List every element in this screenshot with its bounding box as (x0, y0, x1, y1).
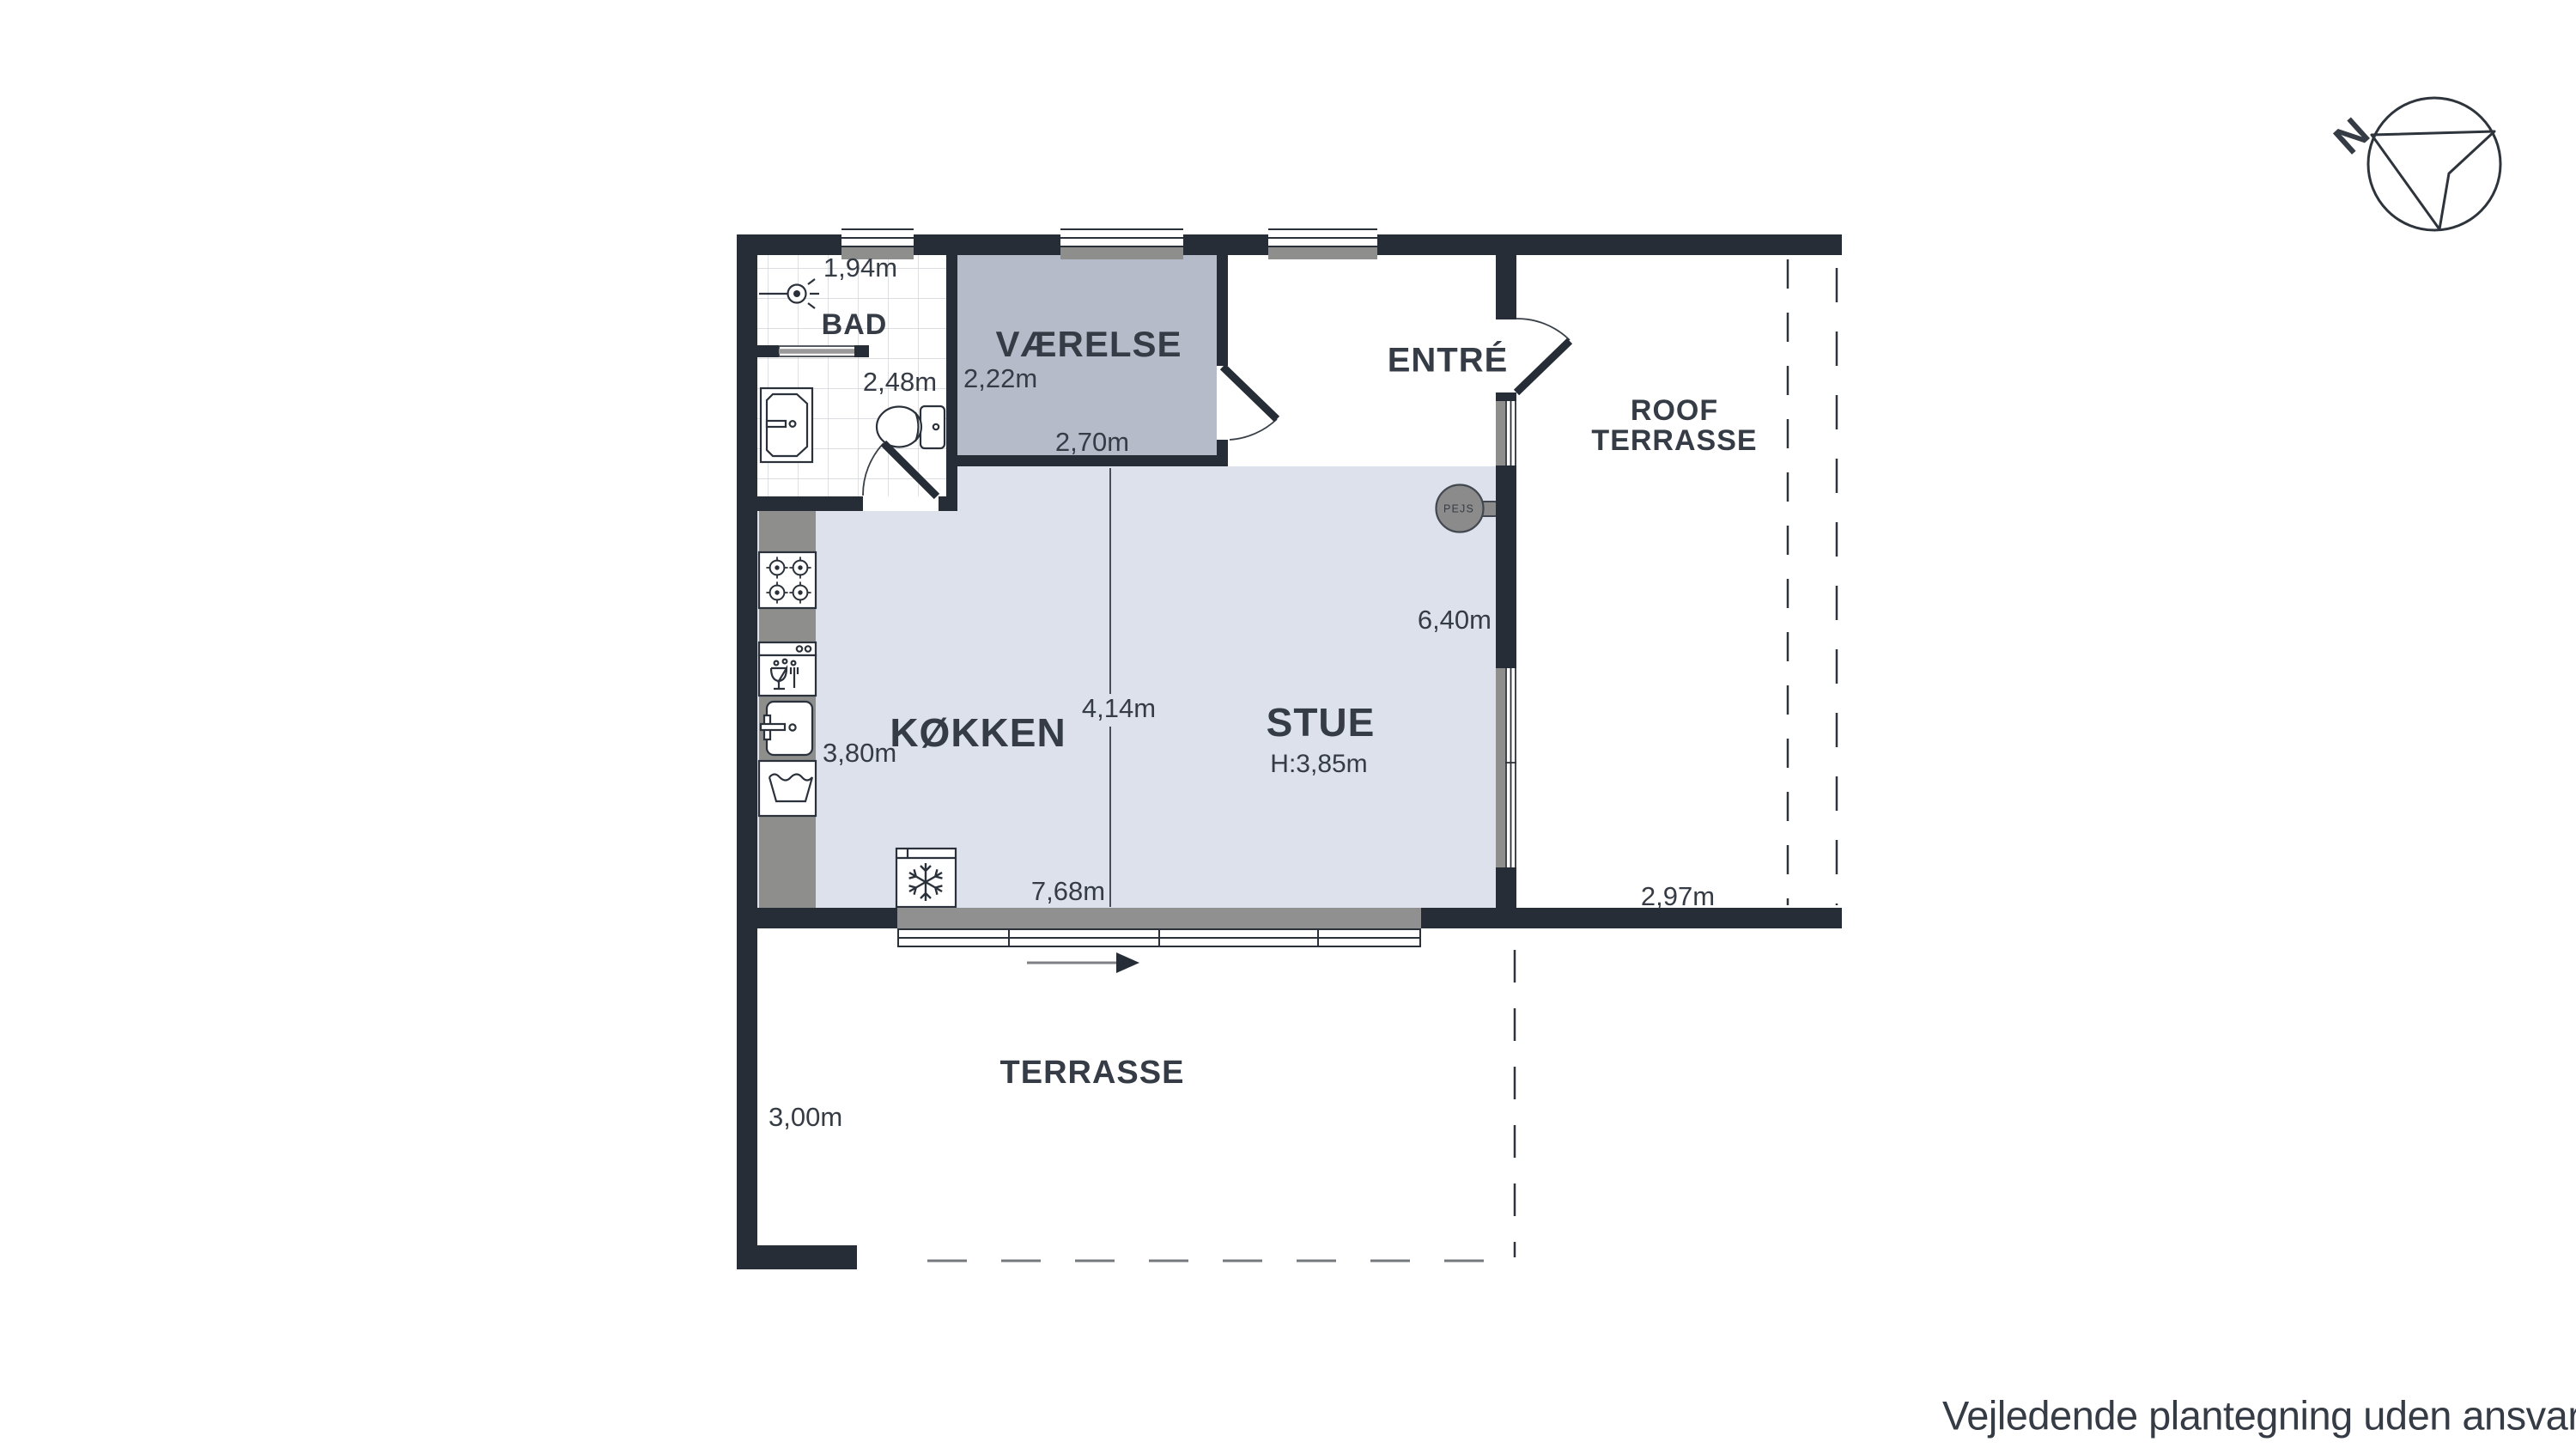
dishwasher-panel-icon (759, 642, 816, 655)
bath-south-wall-stub (939, 496, 957, 511)
bedroom-east-wall (1217, 255, 1228, 366)
east-wall-segment (1496, 867, 1516, 928)
disclaimer-text: Vejledende plantegning uden ansvar (1942, 1392, 2576, 1438)
bath-bedroom-wall (946, 255, 957, 511)
sliding-door-south (897, 908, 1421, 947)
east-wall-segment (1496, 255, 1516, 319)
fireplace-label: PEJS (1443, 502, 1474, 514)
west-wall (737, 234, 757, 1269)
stove-icon (759, 552, 816, 608)
east-wall-segment (1496, 392, 1516, 401)
window-north-3 (1268, 228, 1377, 259)
compass-icon: N (2325, 98, 2500, 230)
vaerelse-width-left-dim: 2,22m (963, 363, 1037, 393)
window-north-2 (1060, 228, 1183, 259)
direction-arrow-icon (1027, 952, 1139, 973)
window-east-lower (1496, 668, 1516, 867)
entre-label: ENTRÉ (1388, 341, 1509, 380)
terrasse-label: TERRASSE (1000, 1055, 1185, 1091)
vaerelse-width-bottom-dim: 2,70m (1055, 427, 1129, 457)
counter-segment (759, 511, 816, 552)
dishwasher-icon (759, 655, 816, 696)
terrasse-depth-dim: 3,00m (769, 1102, 842, 1132)
roof-terrasse-label-line2: TERRASSE (1591, 424, 1757, 457)
east-wall-segment (1496, 465, 1516, 668)
terrace-wall-stub (737, 1245, 857, 1269)
compass-north-letter: N (2325, 110, 2378, 164)
stue-depth-dim: 6,40m (1418, 605, 1492, 635)
vaerelse-label: VÆRELSE (995, 324, 1182, 364)
bad-width-dim: 1,94m (823, 252, 897, 283)
south-wall-west-segment (737, 908, 897, 928)
stue-label: STUE (1267, 700, 1376, 745)
kitchen-livingroom-floor (757, 466, 1496, 908)
bad-depth-dim: 2,48m (863, 367, 937, 397)
shower-partition (757, 345, 869, 357)
koekken-depth-dim: 3,80m (823, 738, 896, 768)
bedroom-door (1223, 367, 1277, 440)
stue-width-dim: 7,68m (1031, 876, 1105, 906)
laundry-tub-icon (759, 761, 816, 816)
counter-segment (759, 816, 816, 908)
bathroom-sink-icon (761, 388, 812, 462)
floorplan-canvas: PEJS (0, 0, 2576, 1448)
stue-ceiling-height: H:3,85m (1270, 750, 1367, 778)
koekken-label: KØKKEN (890, 710, 1066, 755)
entry-door (1516, 319, 1570, 392)
koekken-split-dim: 4,14m (1082, 693, 1156, 723)
counter-segment (759, 608, 816, 642)
floorplan-page: PEJS (0, 0, 2576, 1448)
fridge-icon (896, 849, 956, 907)
bath-south-wall (757, 496, 863, 511)
south-wall-east-segment (1421, 908, 1496, 928)
roof-terrasse-width-dim: 2,97m (1641, 881, 1715, 911)
sink-cabinet-icon (761, 702, 812, 755)
roof-terrasse-label-line1: ROOF (1631, 394, 1718, 427)
bedroom-east-wall-stub (1217, 440, 1228, 457)
bad-label: BAD (822, 308, 888, 341)
window-east-upper (1496, 401, 1516, 465)
